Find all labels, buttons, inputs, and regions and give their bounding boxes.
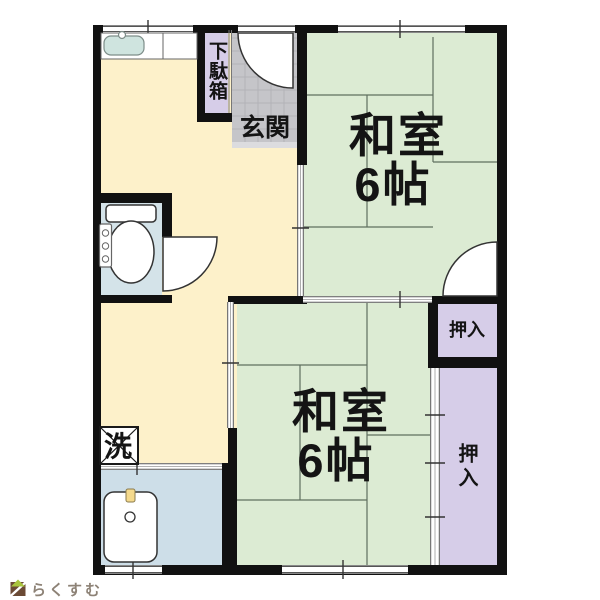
- kitchen-sink-icon: [104, 36, 144, 55]
- laundry-label: 洗: [104, 431, 132, 462]
- genkan-label: 玄関: [240, 113, 290, 142]
- washitsu-top-size-label: 6帖: [354, 158, 431, 211]
- genkan-step: [232, 142, 297, 148]
- floorplan-page: 和室 6帖 和室 6帖 玄関 下駄箱 押入 押入 洗 らくすむ: [0, 0, 600, 600]
- watermark-logo-icon: [9, 580, 27, 598]
- watermark-text: らくすむ: [31, 582, 103, 599]
- floorplan-svg: 和室 6帖 和室 6帖 玄関 下駄箱 押入 押入 洗 らくすむ: [0, 0, 600, 600]
- kitchen-counter: [101, 32, 197, 60]
- kitchen-faucet-icon: [119, 32, 126, 39]
- oshiire-small-label: 押入: [449, 319, 485, 340]
- bathtub-icon: [104, 489, 157, 562]
- washitsu-bottom-name-label: 和室: [292, 385, 390, 438]
- getabako-label: 下駄箱: [206, 41, 228, 101]
- washitsu-top-name-label: 和室: [349, 109, 447, 162]
- oshiire-large-label: 押入: [455, 442, 478, 491]
- washitsu-bottom-size-label: 6帖: [297, 434, 374, 487]
- entrance-doorway: [238, 26, 295, 33]
